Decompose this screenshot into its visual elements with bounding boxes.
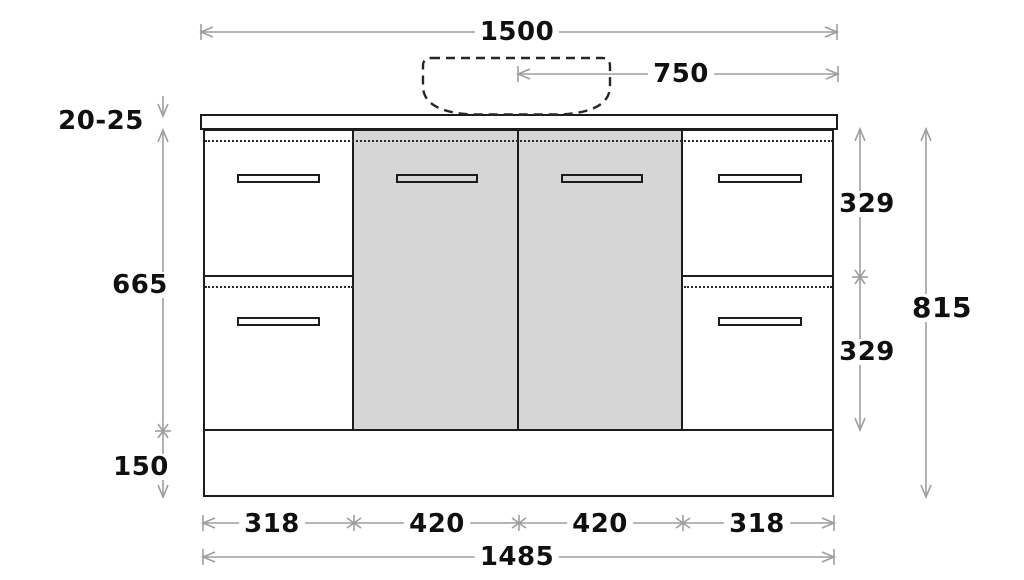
dim-label-left-door-width: 420: [404, 511, 470, 537]
drawer-front-right-bottom: [681, 275, 834, 431]
handle-drawer-right-bottom: [718, 317, 802, 326]
dim-label-top-drawer-height: 329: [834, 191, 900, 217]
drawer-divider-dashed-line-left: [205, 286, 353, 288]
kickboard: [203, 429, 834, 497]
dim-label-cabinet-body-height: 665: [107, 272, 173, 298]
handle-door-left: [396, 174, 478, 183]
dim-label-basin-offset: 750: [648, 61, 714, 87]
dim-benchtop-thickness-20-25: [158, 96, 168, 116]
dim-label-overall-height: 815: [907, 294, 977, 322]
handle-drawer-left-bottom: [237, 317, 320, 326]
vanity-dimension-drawing: 1500 750 20-25 665 150 329 329 815 318 4…: [0, 0, 1024, 580]
dim-label-bottom-drawer-height: 329: [834, 339, 900, 365]
handle-door-right: [561, 174, 643, 183]
dim-label-carcass-width: 1485: [475, 544, 559, 570]
carcass-top-dashed-line: [205, 140, 833, 142]
dim-label-right-door-width: 420: [567, 511, 633, 537]
basin-outline: [423, 58, 610, 115]
handle-drawer-left-top: [237, 174, 320, 183]
handle-drawer-right-top: [718, 174, 802, 183]
dim-label-left-drawers-width: 318: [239, 511, 305, 537]
drawer-front-left-bottom: [203, 275, 354, 431]
drawer-divider-dashed-line-right: [684, 286, 832, 288]
benchtop: [200, 114, 838, 130]
drawer-front-right-top: [681, 129, 834, 277]
dim-label-kickboard-height: 150: [108, 454, 174, 480]
dim-label-right-drawers-width: 318: [724, 511, 790, 537]
dim-label-benchtop-thickness: 20-25: [53, 108, 149, 134]
dim-label-overall-width: 1500: [475, 19, 559, 45]
drawer-front-left-top: [203, 129, 354, 277]
